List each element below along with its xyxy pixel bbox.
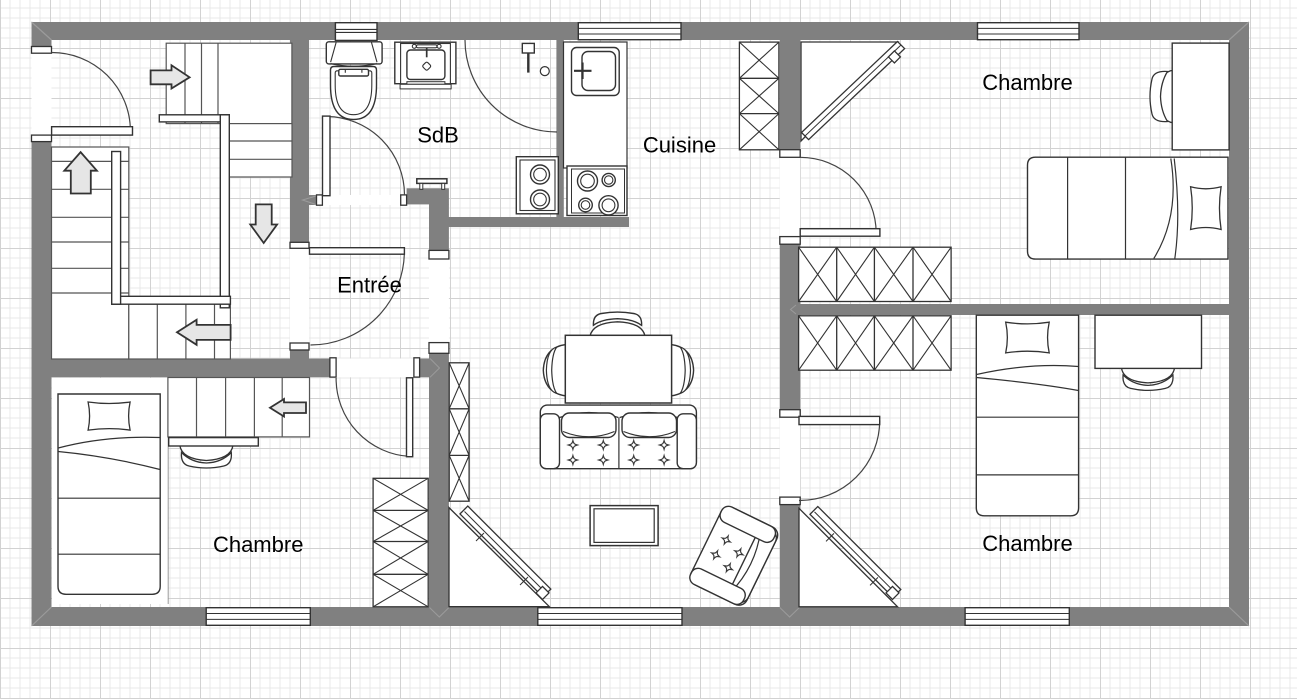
svg-text:Chambre: Chambre bbox=[982, 531, 1072, 556]
svg-text:Entrée: Entrée bbox=[337, 273, 402, 298]
svg-text:Cuisine: Cuisine bbox=[643, 133, 716, 158]
svg-text:Chambre: Chambre bbox=[982, 70, 1072, 95]
svg-text:SdB: SdB bbox=[417, 123, 459, 148]
svg-text:Chambre: Chambre bbox=[213, 532, 303, 557]
